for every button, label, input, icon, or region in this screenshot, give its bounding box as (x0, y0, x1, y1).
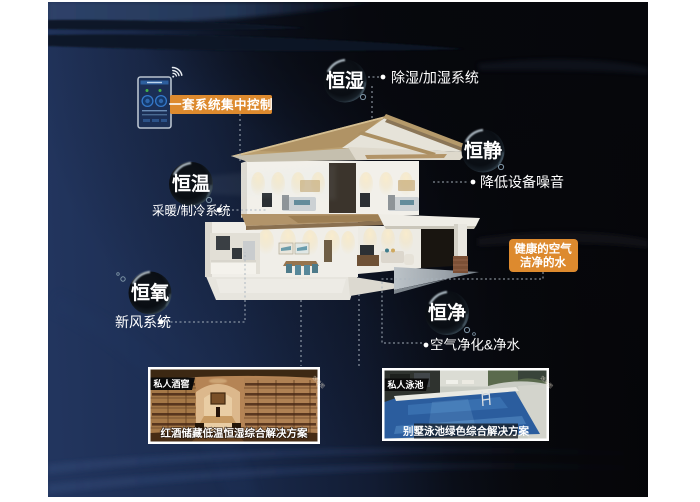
svg-text:新风系统: 新风系统 (115, 314, 171, 330)
svg-text:红酒储藏低温恒湿综合解决方案: 红酒储藏低温恒湿综合解决方案 (161, 427, 308, 440)
svg-text:恒氧: 恒氧 (131, 281, 169, 304)
svg-text:洁净的水: 洁净的水 (520, 255, 566, 269)
svg-text:除湿/加湿系统: 除湿/加湿系统 (391, 70, 479, 86)
svg-text:一套系统集中控制: 一套系统集中控制 (169, 97, 273, 112)
svg-text:降低设备噪音: 降低设备噪音 (480, 174, 564, 190)
svg-text:采暖/制冷系统: 采暖/制冷系统 (152, 204, 230, 218)
svg-text:私人泳池: 私人泳池 (387, 379, 424, 390)
svg-text:私人酒窖: 私人酒窖 (153, 378, 190, 389)
svg-text:恒净: 恒净 (428, 301, 466, 324)
svg-text:恒湿: 恒湿 (326, 70, 364, 92)
svg-text:恒温: 恒温 (172, 173, 210, 195)
svg-text:空气净化&净水: 空气净化&净水 (430, 338, 521, 353)
svg-text:别墅泳池绿色综合解决方案: 别墅泳池绿色综合解决方案 (402, 425, 529, 438)
svg-text:健康的空气: 健康的空气 (514, 242, 572, 256)
svg-text:恒静: 恒静 (464, 139, 502, 162)
